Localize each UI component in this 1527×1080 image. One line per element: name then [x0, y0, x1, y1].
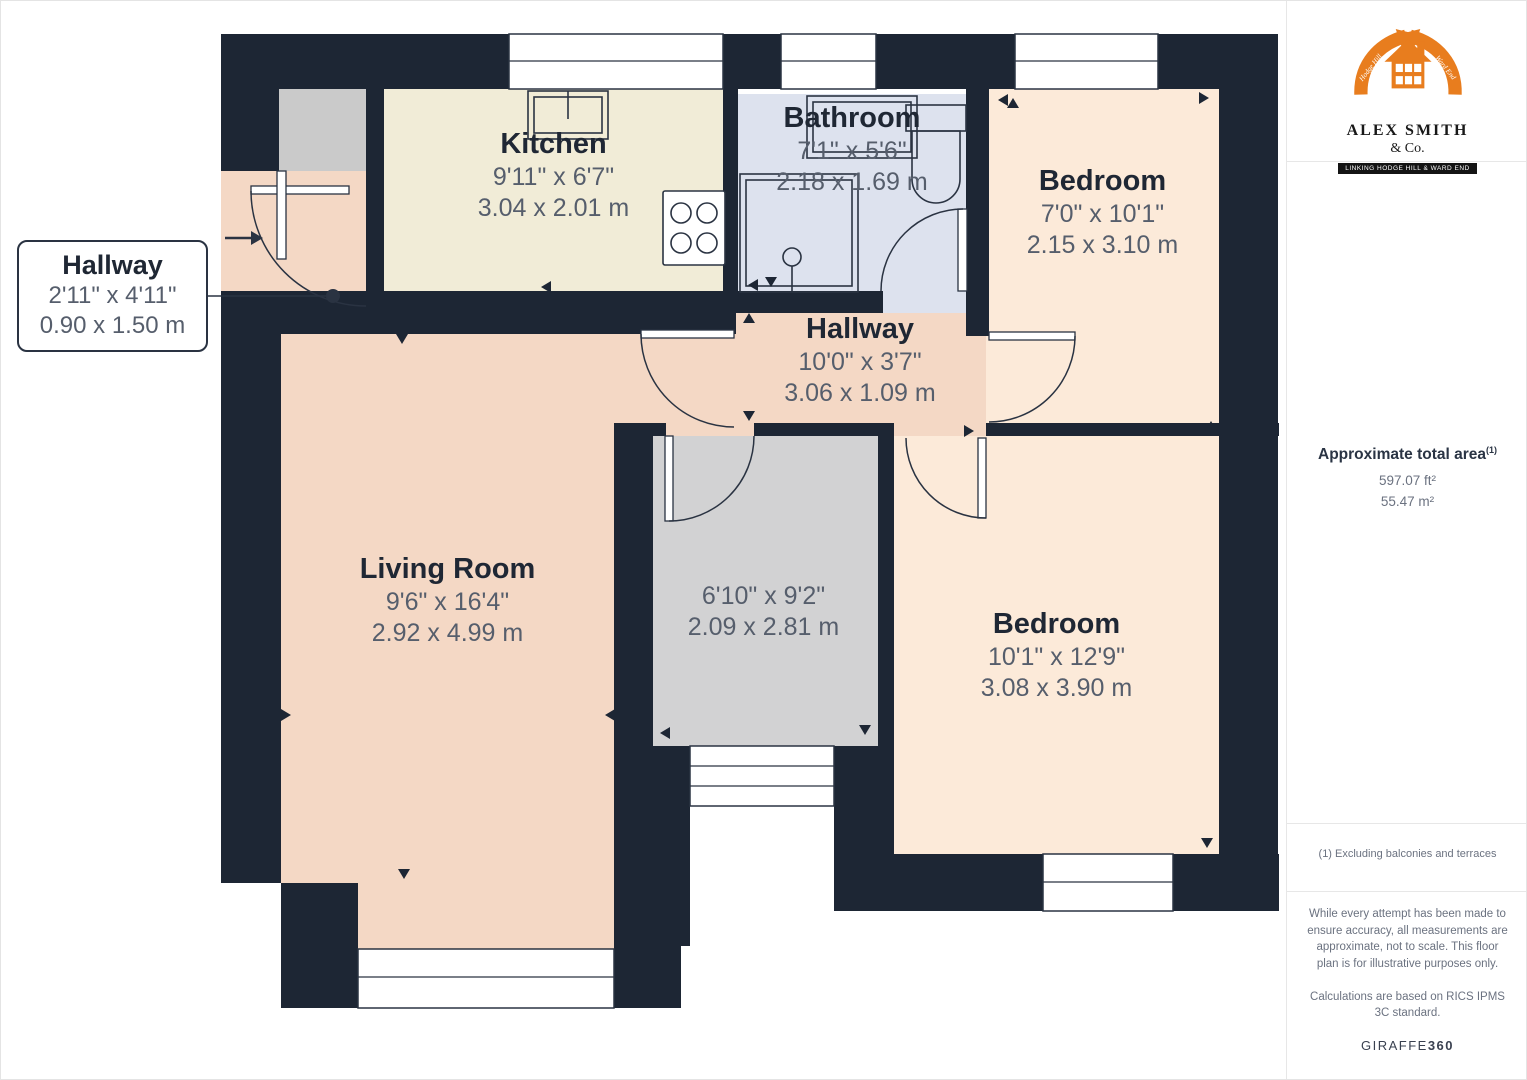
- room-name: Bedroom: [986, 164, 1219, 199]
- room-dim-metric: 3.06 x 1.09 m: [734, 378, 986, 409]
- leader-dot: [326, 289, 340, 303]
- floorplan-page: Kitchen 9'11" x 6'7" 3.04 x 2.01 m Bathr…: [0, 0, 1527, 1080]
- room-dim-metric: 2.09 x 2.81 m: [649, 612, 878, 643]
- bay-floor: [358, 883, 614, 949]
- callout-dim-imperial: 2'11" x 4'11": [19, 281, 206, 311]
- agency-tagline: LINKING HODGE HILL & WARD END: [1338, 163, 1477, 174]
- room-dim-imperial: 7'0" x 10'1": [986, 199, 1219, 230]
- room-name: Hallway: [734, 312, 986, 347]
- giraffe360-brand-bold: 360: [1428, 1038, 1454, 1053]
- window: [1043, 854, 1173, 911]
- window: [358, 949, 614, 1008]
- panel-divider: [1287, 823, 1527, 824]
- total-area-title-text: Approximate total area: [1318, 446, 1486, 463]
- room-name: Living Room: [281, 552, 614, 587]
- room-label-inner-room: 6'10" x 9'2" 2.09 x 2.81 m: [649, 581, 878, 644]
- giraffe360-brand-normal: GIRAFFE: [1361, 1038, 1428, 1053]
- hallway-callout: Hallway 2'11" x 4'11" 0.90 x 1.50 m: [17, 240, 208, 352]
- room-dim-metric: 2.15 x 3.10 m: [986, 230, 1219, 261]
- total-area-m: 55.47 m²: [1287, 494, 1527, 509]
- room-dim-imperial: 10'0" x 3'7": [734, 347, 986, 378]
- total-area-title: Approximate total area(1): [1287, 445, 1527, 464]
- agency-name: ALEX SMITH: [1287, 122, 1527, 140]
- agency-logo-graphic: Hodge Hill Ward End: [1343, 27, 1473, 115]
- room-label-bedroom-bottom: Bedroom 10'1" x 12'9" 3.08 x 3.90 m: [894, 607, 1219, 704]
- room-label-bedroom-top: Bedroom 7'0" x 10'1" 2.15 x 3.10 m: [986, 164, 1219, 261]
- room-dim-imperial: 7'1" x 5'6": [738, 136, 966, 167]
- window: [1015, 34, 1158, 89]
- room-name: Kitchen: [384, 127, 723, 162]
- agency-logo: Hodge Hill Ward End ALEX SMITH & Co. LIN…: [1287, 27, 1527, 175]
- callout-dim-metric: 0.90 x 1.50 m: [19, 311, 206, 341]
- disclaimer-standard: Calculations are based on RICS IPMS 3C s…: [1305, 989, 1511, 1022]
- room-dim-imperial: 6'10" x 9'2": [649, 581, 878, 612]
- room-label-kitchen: Kitchen 9'11" x 6'7" 3.04 x 2.01 m: [384, 127, 723, 224]
- room-name: Bathroom: [738, 101, 966, 136]
- total-area-ft: 597.07 ft²: [1287, 473, 1527, 488]
- room-name: Bedroom: [894, 607, 1219, 642]
- room-dim-imperial: 9'6" x 16'4": [281, 587, 614, 618]
- room-dim-metric: 3.04 x 2.01 m: [384, 193, 723, 224]
- total-area-footnote-ref: (1): [1486, 445, 1497, 455]
- area-footnote: (1) Excluding balconies and terraces: [1287, 848, 1527, 860]
- callout-name: Hallway: [19, 249, 206, 281]
- room-label-living-room: Living Room 9'6" x 16'4" 2.92 x 4.99 m: [281, 552, 614, 649]
- room-dim-imperial: 9'11" x 6'7": [384, 162, 723, 193]
- total-area-block: Approximate total area(1) 597.07 ft² 55.…: [1287, 445, 1527, 509]
- panel-divider: [1287, 891, 1527, 892]
- panel-divider: [1287, 161, 1527, 162]
- window: [509, 34, 723, 89]
- room-label-bathroom: Bathroom 7'1" x 5'6" 2.18 x 1.69 m: [738, 101, 966, 198]
- storage-floor: [279, 89, 366, 171]
- room-label-hallway: Hallway 10'0" x 3'7" 3.06 x 1.09 m: [734, 312, 986, 409]
- room-dim-imperial: 10'1" x 12'9": [894, 642, 1219, 673]
- room-dim-metric: 2.92 x 4.99 m: [281, 618, 614, 649]
- info-panel: Hodge Hill Ward End ALEX SMITH & Co. LIN…: [1286, 1, 1527, 1080]
- giraffe360-brand: GIRAFFE360: [1287, 1038, 1527, 1053]
- disclaimer-accuracy: While every attempt has been made to ens…: [1305, 906, 1511, 973]
- agency-name-suffix: & Co.: [1287, 141, 1527, 157]
- window: [781, 34, 876, 89]
- disclaimer-block: While every attempt has been made to ens…: [1287, 906, 1527, 1053]
- room-dim-metric: 3.08 x 3.90 m: [894, 673, 1219, 704]
- window: [690, 746, 834, 806]
- room-dim-metric: 2.18 x 1.69 m: [738, 167, 966, 198]
